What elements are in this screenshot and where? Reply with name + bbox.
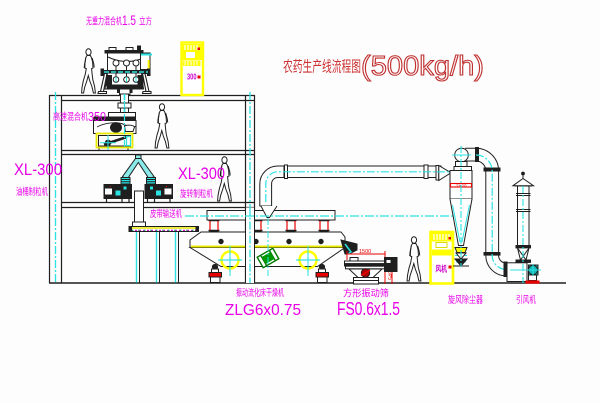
svg-text:300: 300 [187,73,197,82]
svg-text:FS0.6x1.5: FS0.6x1.5 [337,299,400,319]
svg-text:方形振动筛: 方形振动筛 [343,288,389,300]
svg-text:油桶制粒机: 油桶制粒机 [16,186,48,198]
svg-text:无重力混合机: 无重力混合机 [86,16,122,28]
svg-text:(500kg/h): (500kg/h) [361,50,484,81]
svg-text:皮带输送机: 皮带输送机 [150,208,182,220]
svg-text:引风机: 引风机 [516,294,536,306]
svg-text:旋转制粒机: 旋转制粒机 [180,188,213,200]
svg-text:高速混合机: 高速混合机 [53,111,88,123]
svg-text:350: 350 [88,109,106,124]
svg-text:振动流化床干燥机: 振动流化床干燥机 [236,287,284,299]
svg-text:立方: 立方 [139,16,152,28]
svg-text:1500: 1500 [359,249,371,255]
svg-text:农药生产线流程图: 农药生产线流程图 [283,59,361,76]
svg-text:ZLG6x0.75: ZLG6x0.75 [225,302,301,319]
svg-text:XL-300: XL-300 [178,164,225,183]
svg-text:风机: 风机 [436,264,448,274]
svg-text:545: 545 [389,271,395,280]
svg-text:XL-300: XL-300 [14,160,62,179]
svg-text:1.5: 1.5 [122,13,136,28]
svg-text:旋风除尘器: 旋风除尘器 [448,294,483,306]
